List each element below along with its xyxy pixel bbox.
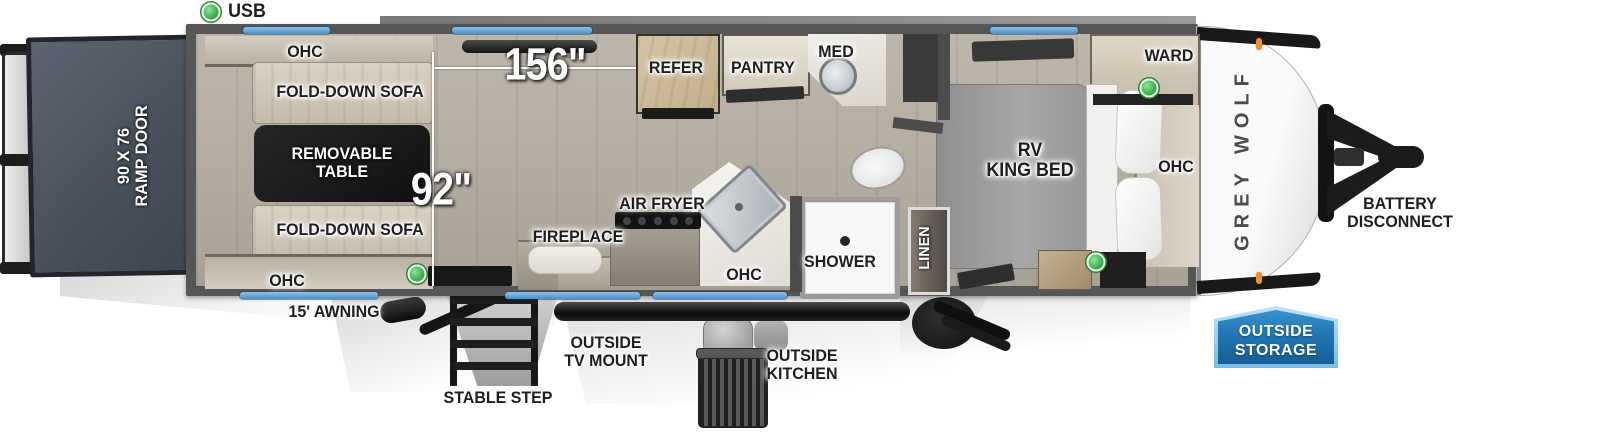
usb-indicator-icon <box>408 265 427 284</box>
entry-media-shelf <box>428 266 512 286</box>
shower-drain-icon <box>840 236 850 246</box>
battery-disconnect-label: BATTERY DISCONNECT <box>1347 195 1453 231</box>
outside-storage-badge: OUTSIDE STORAGE <box>1214 306 1338 368</box>
rv-king-bed-line1: RV <box>986 141 1073 161</box>
window-strip <box>505 292 640 299</box>
bath-wall <box>790 196 802 292</box>
ward-label: WARD <box>1145 47 1194 65</box>
pantry-label: PANTRY <box>731 59 795 77</box>
bed-headboard <box>1086 84 1118 269</box>
fireplace-label: FIREPLACE <box>533 228 624 246</box>
underbody-tube <box>554 302 910 321</box>
grill-lid-edge <box>696 348 768 359</box>
burner-icon <box>638 217 646 225</box>
air-fryer-label: AIR FRYER <box>619 195 705 213</box>
removable-table-label: REMOVABLE TABLE <box>292 145 393 181</box>
ramp-door-text: RAMP DOOR <box>133 105 151 206</box>
usb-indicator-icon <box>1140 79 1159 98</box>
rv-king-bed-line2: KING BED <box>986 161 1073 181</box>
bath-sink-icon <box>819 57 857 95</box>
outside-kitchen-grill <box>698 354 768 428</box>
marker-light-icon <box>1256 272 1262 284</box>
bedroom-wall <box>938 34 950 120</box>
fold-down-sofa-top-label: FOLD-DOWN SOFA <box>276 83 423 101</box>
stable-step-ladder <box>450 296 538 386</box>
fold-down-sofa-bottom-label: FOLD-DOWN SOFA <box>276 221 423 239</box>
removable-table-line1: REMOVABLE <box>292 145 393 163</box>
stable-step-label: STABLE STEP <box>444 389 553 407</box>
awning-label: 15' AWNING <box>288 303 379 321</box>
battery-disconnect-line2: DISCONNECT <box>1347 213 1453 231</box>
outside-kitchen-line2: KITCHEN <box>766 365 837 383</box>
linen-label: LINEN <box>917 226 933 269</box>
usb-indicator-icon <box>202 3 221 22</box>
range-body <box>610 228 700 286</box>
floorplan-diagram: USB 90 X 76 RAMP DOOR 156" 92" <box>0 0 1600 434</box>
burner-icon <box>623 217 631 225</box>
overhead-cabinet-bottom <box>205 254 433 289</box>
outside-tv-mount-line1: OUTSIDE <box>564 334 647 352</box>
ladder-rung <box>450 340 538 348</box>
outside-storage-line2: STORAGE <box>1214 341 1338 360</box>
removable-table-line2: TABLE <box>292 163 393 181</box>
outside-tv-mount-line2: TV MOUNT <box>564 352 647 370</box>
outside-kitchen-label: OUTSIDE KITCHEN <box>766 347 837 383</box>
ohc-label-bedroom: OHC <box>1158 158 1194 176</box>
refrigerator-base <box>642 108 714 119</box>
ladder-rung <box>450 318 538 326</box>
ohc-label-garage-bottom: OHC <box>269 272 305 290</box>
outside-storage-label: OUTSIDE STORAGE <box>1214 322 1338 360</box>
refer-label: REFER <box>649 59 703 77</box>
front-cap <box>1196 26 1328 296</box>
brand-logo: GREY WOLF <box>1232 67 1255 251</box>
rv-king-bed-label: RV KING BED <box>986 141 1073 181</box>
ohc-label-garage-top: OHC <box>287 43 323 61</box>
window-strip <box>990 27 1078 34</box>
window-strip <box>240 292 378 299</box>
med-label: MED <box>818 43 854 61</box>
ramp-door-size: 90 X 76 <box>115 105 133 206</box>
battery-disconnect-line1: BATTERY <box>1347 195 1453 213</box>
ramp-door-label: 90 X 76 RAMP DOOR <box>115 105 151 206</box>
shower-pan <box>800 197 900 299</box>
usb-indicator-icon <box>1087 253 1106 272</box>
sink-drain-icon <box>735 203 743 211</box>
length-dimension: 156" <box>504 42 585 87</box>
burner-icon <box>685 217 693 225</box>
shower-label: SHOWER <box>804 253 876 271</box>
bedroom-tv-mount <box>972 38 1075 62</box>
ohc-label-kitchen: OHC <box>726 266 762 284</box>
outside-storage-line1: OUTSIDE <box>1214 322 1338 341</box>
burner-icon <box>654 217 662 225</box>
bed-pillow <box>1115 176 1164 262</box>
window-strip <box>653 292 787 299</box>
burner-icon <box>670 217 678 225</box>
usb-legend-label: USB <box>228 2 266 22</box>
air-fryer-cooktop <box>615 212 701 229</box>
ladder-rung <box>450 362 538 370</box>
width-dimension: 92" <box>411 167 471 212</box>
window-strip <box>452 27 592 34</box>
nightstand <box>1038 250 1092 290</box>
outside-tv-mount-label: OUTSIDE TV MOUNT <box>564 334 647 370</box>
bedroom-cabinet <box>1100 252 1146 288</box>
window-strip <box>243 27 330 34</box>
fireplace-unit <box>528 246 602 274</box>
marker-light-icon <box>1256 38 1262 50</box>
outside-kitchen-line1: OUTSIDE <box>766 347 837 365</box>
